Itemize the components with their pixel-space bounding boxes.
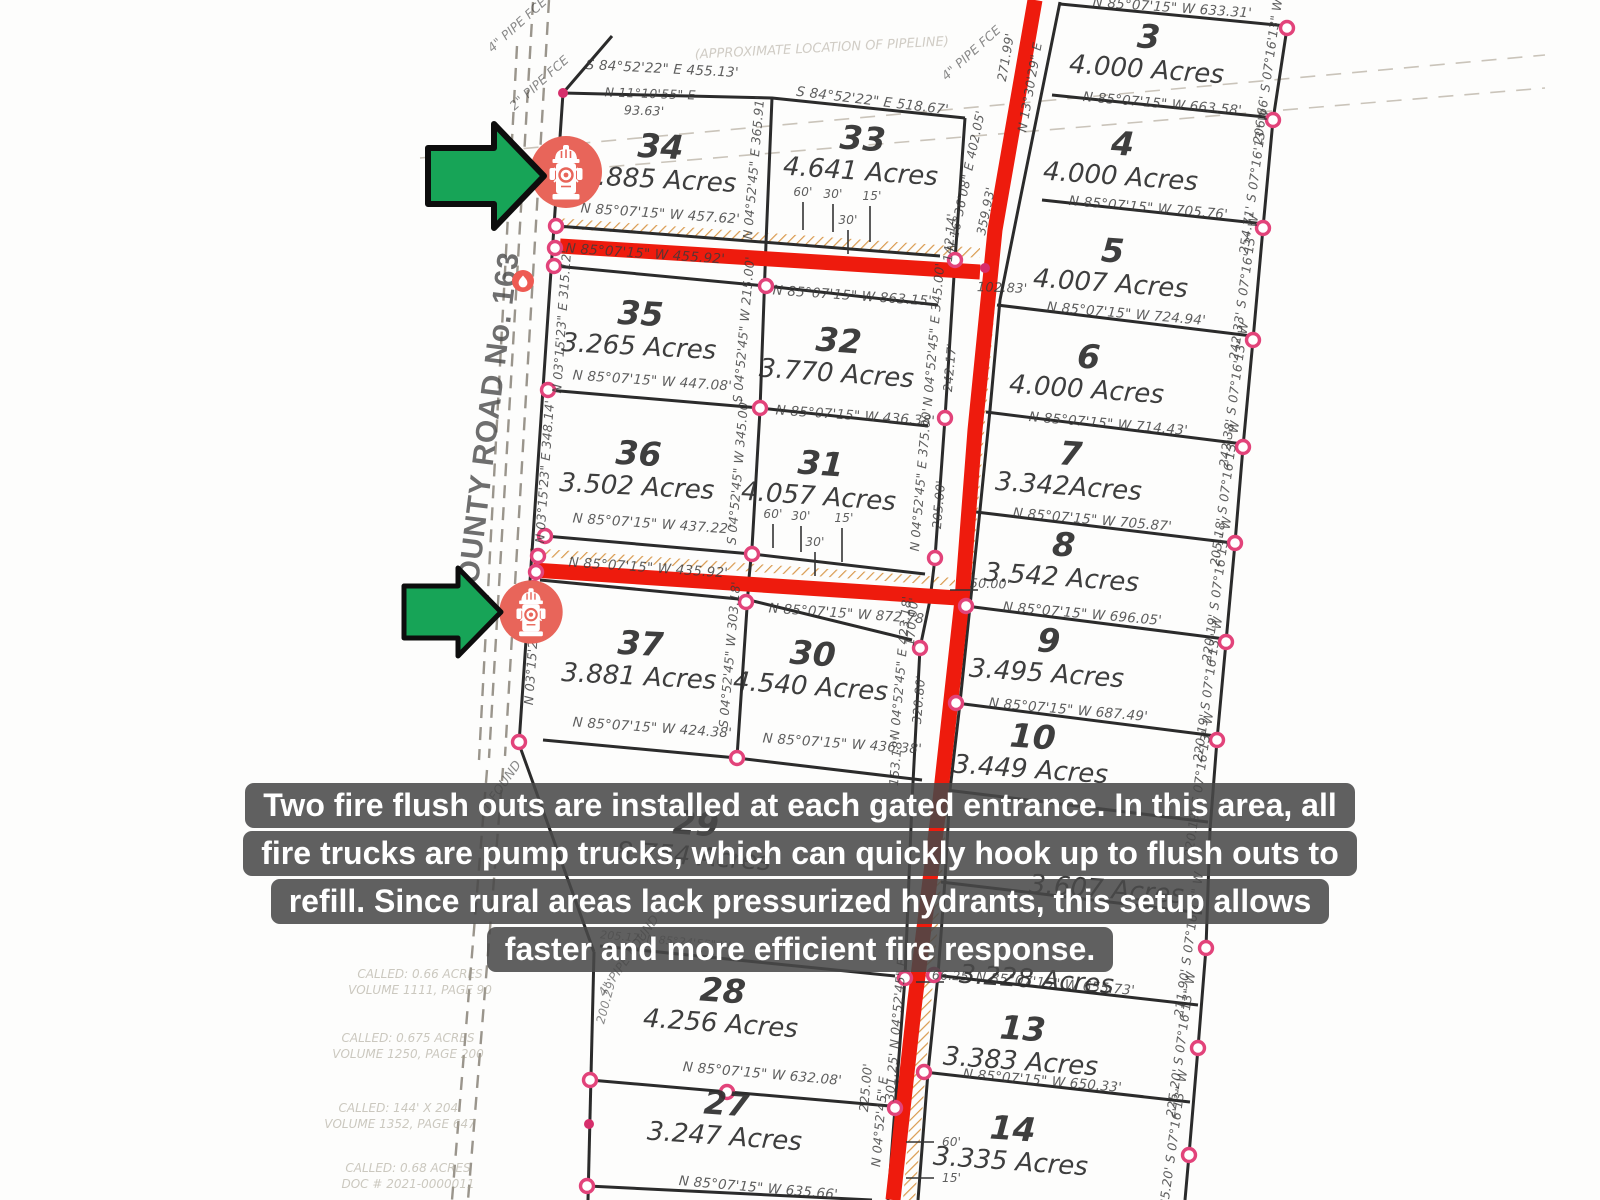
lot-label: 304.540 Acres	[732, 629, 891, 708]
survey-text-label: CALLED: 0.675 ACRES	[342, 1031, 475, 1045]
survey-text-label: 4" PIPE FCE	[938, 22, 1003, 83]
survey-text-label: VOLUME 1352, PAGE 647	[324, 1117, 476, 1131]
caption-text: Two fire flush outs are installed at eac…	[263, 787, 1336, 823]
lot-label: 323.770 Acres	[758, 316, 917, 395]
survey-text-label: N 85°07'15" W 714.43'	[1028, 409, 1188, 439]
lot-acres: 3.247 Acres	[646, 1117, 803, 1158]
lot-label: 273.247 Acres	[646, 1079, 805, 1158]
lot-label: 73.342Acres	[994, 429, 1145, 507]
lot-number: 10	[1009, 715, 1058, 757]
survey-vertex-dot	[1183, 1149, 1196, 1162]
county-road-label: COUNTY ROAD No. 163	[449, 250, 525, 608]
lot-label: 334.641 Acres	[782, 114, 941, 193]
lot-number: 27	[703, 1082, 752, 1124]
survey-vertex-dot	[950, 697, 963, 710]
survey-text-label: S 04°52'45" W 215.00'	[730, 256, 758, 403]
lot-number: 36	[615, 433, 663, 474]
lot-label: 103.449 Acres	[952, 712, 1111, 791]
lot-label: 133.383 Acres	[942, 1004, 1101, 1083]
survey-vertex-dot	[889, 1102, 902, 1115]
lot-number: 31	[797, 442, 846, 484]
caption-text: refill. Since rural areas lack pressuriz…	[289, 883, 1312, 919]
lot-label: 93.495 Acres	[968, 616, 1127, 695]
lot-acres: 4.000 Acres	[1042, 157, 1199, 198]
lot-number: 3	[1136, 16, 1162, 57]
survey-text-label: S 04°52'45" W 345.00'	[724, 398, 752, 545]
caption-line-1: Two fire flush outs are installed at eac…	[245, 783, 1354, 828]
lot-number: 28	[699, 969, 748, 1011]
lot-number: 33	[839, 117, 888, 159]
lot-acres: 3.495 Acres	[968, 654, 1125, 695]
survey-text-label: N 85°07'15" W 633.31'	[1092, 0, 1252, 22]
lot-acres: 4.000 Acres	[1008, 370, 1165, 411]
survey-vertex-dot	[918, 1066, 931, 1079]
lot-acres: 4.540 Acres	[732, 667, 889, 708]
lot-number: 4	[1109, 123, 1136, 164]
lot-number: 13	[999, 1007, 1048, 1049]
lot-acres: 3.502 Acres	[559, 468, 715, 506]
survey-text-label: N 85°07'15" W 863.15'	[772, 282, 932, 309]
survey-vertex-dot	[754, 402, 767, 415]
survey-text-label: VOLUME 1111, PAGE 90	[348, 983, 492, 997]
lot-acres: 4.000 Acres	[1068, 50, 1225, 91]
lot-acres: 3.881 Acres	[561, 658, 717, 696]
survey-text-label: 15'	[862, 189, 881, 203]
survey-text-label: N 85°07'15" W 447.08'	[572, 367, 732, 394]
survey-vertex-dot	[939, 412, 952, 425]
fire-hydrant-marker-bottom	[499, 580, 562, 643]
lot-acres: 3.542 Acres	[983, 558, 1140, 599]
caption-line-4: faster and more efficient fire response.	[487, 927, 1113, 972]
lot-label: 44.000 Acres	[1042, 119, 1201, 198]
lot-number: 5	[1100, 230, 1126, 271]
lot-label: 363.502 Acres	[559, 430, 717, 506]
survey-vertex-dot	[929, 552, 942, 565]
survey-text-label: N 85°07'15" W 705.87'	[1012, 505, 1172, 535]
survey-text-label: 30'	[838, 213, 857, 227]
survey-vertex-dot	[581, 1180, 594, 1193]
lot-acres: 3.265 Acres	[561, 328, 717, 366]
survey-text-label: N 85°07'15" W 635.66'	[678, 1173, 838, 1200]
lot-acres: 3.885 Acres	[581, 161, 737, 199]
lot-number: 30	[789, 632, 838, 674]
survey-text-label: N 85°07'15" W 424.38'	[572, 714, 732, 741]
flame-icon	[512, 270, 534, 292]
survey-text-label: N 04°52'45" E 375.00'	[907, 407, 934, 551]
lot-number: 35	[617, 293, 665, 334]
survey-text-label: 93.63'	[624, 102, 665, 118]
lot-acres: 4.007 Acres	[1032, 264, 1189, 305]
lot-label: 353.265 Acres	[561, 290, 719, 366]
survey-vertex-dot	[584, 1074, 597, 1087]
survey-text-label: 102.83'	[977, 280, 1028, 297]
survey-text-label: S 84°52'22" E 518.67'	[795, 84, 949, 119]
survey-text-label: 320.80'	[909, 675, 928, 725]
survey-text-label: CALLED: 0.68 ACRES	[345, 1161, 471, 1175]
lot-label: 34.000 Acres	[1068, 12, 1227, 91]
survey-text-label: CALLED: 144' X 204'	[339, 1101, 462, 1115]
lot-number: 14	[989, 1107, 1038, 1149]
lot-acres: 4.256 Acres	[642, 1004, 799, 1045]
lot-label: 314.057 Acres	[740, 439, 899, 518]
survey-text-label: 30'	[805, 535, 824, 549]
lot-number: 7	[1058, 433, 1084, 474]
plat-survey-drawing: S 84°52'22" E 455.13'N 11°10'55" E93.63'…	[0, 0, 1600, 1200]
survey-text-label: 271.99'	[994, 32, 1017, 82]
survey-text-label: VOLUME 1250, PAGE 200	[332, 1047, 484, 1061]
caption-line-2: fire trucks are pump trucks, which can q…	[243, 831, 1357, 876]
survey-vertex-dot	[746, 548, 759, 561]
caption-line-3: refill. Since rural areas lack pressuriz…	[271, 879, 1330, 924]
survey-text-label: N 85°07'15" W 437.22'	[572, 510, 732, 537]
survey-text-label: (APPROXIMATE LOCATION OF PIPELINE)	[694, 34, 949, 62]
lot-number: 37	[617, 623, 665, 664]
survey-text-label: N 85°07'15" W 705.76'	[1068, 193, 1228, 223]
survey-text-label: 205.00'	[929, 480, 948, 530]
lot-number: 9	[1036, 620, 1062, 661]
survey-vertex-dot	[532, 550, 545, 563]
lot-label: 143.335 Acres	[932, 1104, 1091, 1183]
survey-text-label: N 04°52'45" E 365.91'	[740, 95, 767, 239]
lot-number: 32	[815, 319, 864, 361]
survey-text-label: N 85°07'15" W 696.05'	[1002, 599, 1162, 629]
survey-text-label: 60'	[793, 185, 812, 199]
lot-number: 34	[637, 126, 685, 167]
survey-text-label: 235.20' S 07°16'13" W	[1155, 1068, 1190, 1200]
lot-label: 284.256 Acres	[642, 966, 801, 1045]
survey-vertex-dot	[584, 1119, 594, 1129]
survey-vertex-dot	[731, 752, 744, 765]
survey-vertex-dot	[1192, 1042, 1205, 1055]
lot-acres: 3.342Acres	[994, 467, 1142, 507]
lot-label: 343.885 Acres	[581, 123, 739, 199]
survey-text-label: 30'	[823, 187, 842, 201]
survey-vertex-dot	[1281, 22, 1294, 35]
survey-text-label: N 03°15'23" E 348.14'	[532, 399, 557, 543]
survey-text-label: N 85°07'15" W 436.38'	[775, 402, 935, 429]
survey-text-label: DOC # 2021-0000011	[341, 1177, 474, 1191]
lot-label: 83.542 Acres	[983, 520, 1142, 599]
lot-number: 6	[1076, 336, 1102, 377]
lot-label: 64.000 Acres	[1008, 332, 1167, 411]
survey-vertex-dot	[558, 88, 568, 98]
survey-vertex-dot	[530, 566, 543, 579]
caption-text: faster and more efficient fire response.	[505, 931, 1095, 967]
green-arrow-icon-top	[428, 124, 544, 228]
lot-number: 8	[1051, 524, 1077, 565]
caption-text: fire trucks are pump trucks, which can q…	[261, 835, 1339, 871]
survey-vertex-dot	[760, 280, 773, 293]
lot-label: 54.007 Acres	[1032, 226, 1191, 305]
caption-overlay: Two fire flush outs are installed at eac…	[0, 783, 1600, 975]
survey-text-label: 242.17'	[940, 343, 959, 393]
survey-vertex-dot	[513, 736, 526, 749]
survey-vertex-dot	[550, 220, 563, 233]
plat-map-image: S 84°52'22" E 455.13'N 11°10'55" E93.63'…	[0, 0, 1600, 1200]
survey-text-label: N 85°07'15" W 663.58'	[1082, 89, 1242, 119]
survey-vertex-dot	[960, 600, 973, 613]
survey-vertex-dot	[980, 263, 990, 273]
lot-label: 373.881 Acres	[561, 620, 719, 696]
lot-acres: 3.770 Acres	[758, 354, 915, 395]
survey-text-label: N 11°10'55" E	[604, 84, 695, 102]
